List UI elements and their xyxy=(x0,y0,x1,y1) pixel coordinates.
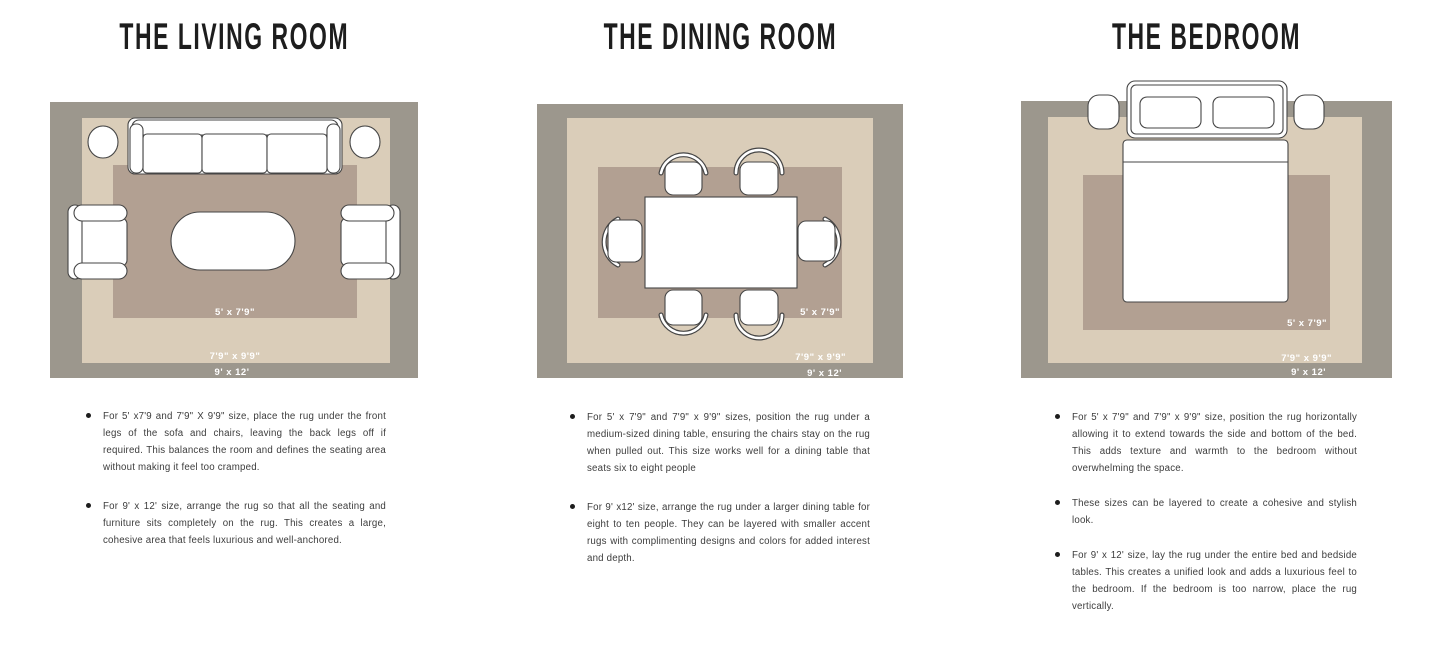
rug-size-label-middle: 7'9" x 9'9" xyxy=(1281,353,1332,364)
list-item: For 5' x7'9 and 7'9" X 9'9" size, place … xyxy=(86,408,386,476)
bullet-text: For 5' x 7'9" and 7'9" x 9'9" size, posi… xyxy=(1072,409,1357,477)
rug-size-label-inner: 5' x 7'9" xyxy=(215,307,255,318)
dining-room-diagram: 5' x 7'9" 7'9" x 9'9" 9' x 12' xyxy=(537,100,903,378)
rug-placement-guide: THE LIVING ROOM xyxy=(0,0,1445,657)
list-item: These sizes can be layered to create a c… xyxy=(1055,495,1357,529)
list-item: For 5' x 7'9" and 7'9" x 9'9" sizes, pos… xyxy=(570,409,870,477)
living-room-header: THE LIVING ROOM xyxy=(50,14,418,60)
rug-size-label-outer: 9' x 12' xyxy=(807,368,842,378)
rug-size-label-middle: 7'9" x 9'9" xyxy=(795,352,846,363)
side-table-right-icon xyxy=(350,126,380,158)
rug-size-label-outer: 9' x 12' xyxy=(1291,367,1326,378)
bedroom-header: THE BEDROOM xyxy=(1021,14,1392,60)
rug-size-label-middle: 7'9" x 9'9" xyxy=(210,351,261,362)
dining-room-notes: For 5' x 7'9" and 7'9" x 9'9" sizes, pos… xyxy=(570,409,870,589)
bullet-icon xyxy=(86,503,91,508)
living-room-notes: For 5' x7'9 and 7'9" X 9'9" size, place … xyxy=(86,408,386,571)
rug-size-label-outer: 9' x 12' xyxy=(215,367,250,378)
dining-room-header: THE DINING ROOM xyxy=(537,14,903,60)
bedroom-diagram: 5' x 7'9" 7'9" x 9'9" 9' x 12' xyxy=(1021,78,1392,378)
list-item: For 9' x 12' size, arrange the rug so th… xyxy=(86,498,386,549)
nightstand-right-icon xyxy=(1294,95,1324,129)
bullet-text: These sizes can be layered to create a c… xyxy=(1072,495,1357,529)
bullet-text: For 5' x 7'9" and 7'9" x 9'9" sizes, pos… xyxy=(587,409,870,477)
bullet-text: For 9' x12' size, arrange the rug under … xyxy=(587,499,870,567)
dining-room-title: THE DINING ROOM xyxy=(603,16,837,58)
living-room-diagram: 5' x 7'9" 7'9" x 9'9" 9' x 12' xyxy=(50,100,418,378)
side-table-left-icon xyxy=(88,126,118,158)
sofa-icon xyxy=(128,118,342,174)
list-item: For 5' x 7'9" and 7'9" x 9'9" size, posi… xyxy=(1055,409,1357,477)
bullet-icon xyxy=(1055,552,1060,557)
bedroom-title: THE BEDROOM xyxy=(1112,16,1301,58)
living-room-title: THE LIVING ROOM xyxy=(119,16,349,58)
bullet-text: For 9' x 12' size, arrange the rug so th… xyxy=(103,498,386,549)
armchair-left-icon xyxy=(68,205,127,279)
list-item: For 9' x12' size, arrange the rug under … xyxy=(570,499,870,567)
list-item: For 9' x 12' size, lay the rug under the… xyxy=(1055,547,1357,615)
armchair-right-icon xyxy=(341,205,400,279)
bed-icon xyxy=(1123,81,1288,302)
bullet-icon xyxy=(570,414,575,419)
bullet-text: For 5' x7'9 and 7'9" X 9'9" size, place … xyxy=(103,408,386,476)
dining-chair-right-icon xyxy=(798,219,839,265)
pillow-right-icon xyxy=(1213,97,1274,128)
bullet-icon xyxy=(1055,414,1060,419)
bullet-text: For 9' x 12' size, lay the rug under the… xyxy=(1072,547,1357,615)
coffee-table-icon xyxy=(171,212,295,270)
rug-size-label-inner: 5' x 7'9" xyxy=(1287,318,1327,329)
bullet-icon xyxy=(570,504,575,509)
bullet-icon xyxy=(86,413,91,418)
bedroom-notes: For 5' x 7'9" and 7'9" x 9'9" size, posi… xyxy=(1055,409,1357,633)
dining-chair-left-icon xyxy=(604,219,642,265)
rug-size-label-inner: 5' x 7'9" xyxy=(800,307,840,318)
pillow-left-icon xyxy=(1140,97,1201,128)
bullet-icon xyxy=(1055,500,1060,505)
nightstand-left-icon xyxy=(1088,95,1119,129)
dining-table-icon xyxy=(645,197,797,288)
